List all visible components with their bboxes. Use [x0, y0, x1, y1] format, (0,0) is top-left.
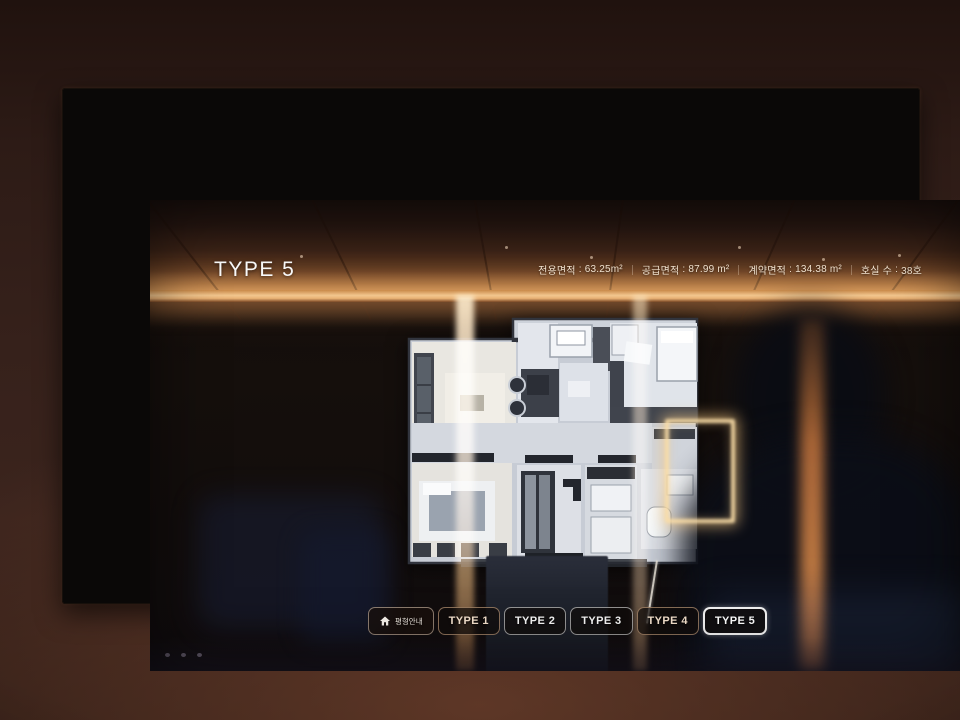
tab-type-3[interactable]: TYPE 3 — [570, 607, 632, 635]
area-stats: 전용면적:63.25m² 공급면적:87.99 m² 계약면적:134.38 m… — [538, 262, 922, 277]
amber-glow-band — [150, 290, 960, 302]
chair-reflection — [198, 495, 383, 630]
tab-type-4[interactable]: TYPE 4 — [637, 607, 699, 635]
stat-unit-count: 호실 수:38호 — [861, 262, 922, 277]
orange-light-reflection — [800, 320, 824, 671]
stat-exclusive-area: 전용면적:63.25m² — [538, 262, 623, 277]
floorplan-render — [405, 315, 702, 567]
home-icon — [379, 615, 391, 627]
stat-contract-area: 계약면적:134.38 m² — [748, 262, 841, 277]
type-navigation: 평형안내 TYPE 1 TYPE 2 TYPE 3 TYPE 4 TYPE 5 — [368, 607, 767, 635]
display-bezel: TYPE 5 전용면적:63.25m² 공급면적:87.99 m² 계약면적:1… — [62, 88, 920, 604]
page-title: TYPE 5 — [214, 258, 295, 282]
stat-supply-area: 공급면적:87.99 m² — [642, 262, 730, 277]
tab-type-5[interactable]: TYPE 5 — [703, 607, 767, 635]
tab-type-2[interactable]: TYPE 2 — [504, 607, 566, 635]
kiosk-screen: TYPE 5 전용면적:63.25m² 공급면적:87.99 m² 계약면적:1… — [150, 200, 960, 671]
home-button-label: 평형안내 — [395, 616, 423, 627]
tab-type-1[interactable]: TYPE 1 — [438, 607, 500, 635]
photo-of-kiosk: TYPE 5 전용면적:63.25m² 공급면적:87.99 m² 계약면적:1… — [0, 0, 960, 720]
home-button[interactable]: 평형안내 — [368, 607, 434, 635]
screen-indicator-dots — [165, 653, 202, 657]
